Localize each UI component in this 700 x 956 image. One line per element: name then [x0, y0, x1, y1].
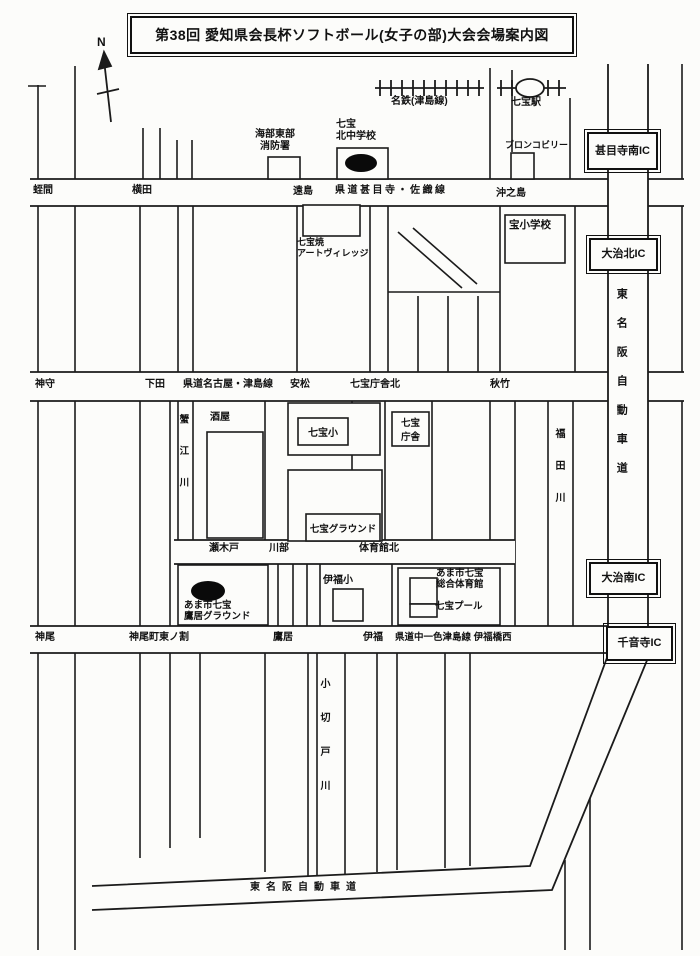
ic-oharu-minami: 大治南IC — [589, 562, 658, 595]
bronco-block — [511, 153, 534, 179]
junior-high-label: 七宝 北中学校 — [336, 119, 390, 143]
shippo-elementary-label: 七宝小 — [298, 418, 348, 445]
intersection-akitake: 秋竹 — [490, 379, 510, 391]
sogo-taiikukan-label: あま市七宝 総合体育館 — [436, 568, 484, 591]
north-arrow-icon — [97, 52, 119, 122]
kokirido-river-label: 小切戸川 — [317, 678, 329, 796]
intersection-kawabe: 川部 — [269, 543, 289, 555]
ifuku-elementary-label: 伊福小 — [323, 575, 353, 587]
ic-senonji-label: 千音寺IC — [618, 637, 662, 649]
intersection-takasue: 鷹居 — [273, 632, 293, 644]
art-village-label: 七宝焼 アートヴィレッジ — [297, 237, 368, 259]
ic-jimokuji-minami: 甚目寺南IC — [587, 132, 658, 170]
map-title: 第38回 愛知県会長杯ソフトボール(女子の部)大会会場案内図 — [130, 16, 574, 54]
pool-box — [410, 604, 437, 617]
road-nakaisshiki-label: 県道中一色津島線 伊福橋西 — [395, 632, 512, 643]
intersection-kamori: 神守 — [35, 379, 55, 391]
takara-elementary-label: 宝小学校 — [509, 219, 551, 232]
meitetsu-railway — [375, 79, 566, 97]
intersection-segido: 瀬木戸 — [209, 543, 239, 555]
shippo-pool-label: 七宝プール — [435, 601, 483, 612]
intersection-chosha-kita: 七宝庁舎北 — [350, 379, 400, 391]
sakaya-block — [207, 432, 263, 538]
bronco-billy-label: ブロンコビリー — [505, 140, 568, 151]
intersection-kamio: 神尾 — [35, 632, 55, 644]
gym-box — [410, 578, 437, 604]
shippo-chosha-label: 七宝 庁舎 — [392, 412, 429, 446]
map-title-text: 第38回 愛知県会長杯ソフトボール(女子の部)大会会場案内図 — [155, 25, 549, 45]
station-symbol — [516, 79, 544, 97]
ic-senonji: 千音寺IC — [606, 626, 673, 661]
station-label: 七宝駅 — [511, 97, 541, 109]
ic-oharu-kita: 大治北IC — [589, 238, 658, 271]
junior-high-venue-marker — [345, 154, 377, 172]
ifuku-elementary-box — [333, 589, 363, 621]
road-nagoya-tsushima-label: 県道名古屋・津島線 — [183, 379, 273, 391]
intersection-okinoshima: 沖之島 — [496, 188, 526, 200]
takasue-ground-label: あま市七宝 鷹居グラウンド — [184, 600, 251, 623]
shippo-ground-label: 七宝グラウンド — [306, 514, 380, 541]
map-canvas: 第38回 愛知県会長杯ソフトボール(女子の部)大会会場案内図 N 名鉄(津島線)… — [0, 0, 700, 956]
fukuta-river-label: 福田川 — [552, 428, 564, 510]
ic-oharu-minami-label: 大治南IC — [602, 572, 646, 584]
takasue-ground-venue-marker — [191, 581, 225, 601]
fire-station-block — [268, 157, 300, 179]
intersection-ifuku: 伊福 — [363, 632, 383, 644]
intersection-hiruma: 蛭間 — [33, 185, 53, 197]
sakaya-label: 酒屋 — [210, 412, 230, 424]
kanie-river-label: 蟹江川 — [177, 414, 188, 492]
ic-jimokuji-minami-label: 甚目寺南IC — [594, 145, 652, 157]
north-label: N — [97, 35, 106, 49]
intersection-yasumatsu: 安松 — [290, 379, 310, 391]
intersection-yokota: 横田 — [132, 185, 152, 197]
intersection-toshima: 遠島 — [293, 186, 313, 198]
tomeihan-vertical-label: 東名阪自動車道 — [614, 288, 627, 520]
fire-station-label: 海部東部 消防署 — [248, 129, 302, 153]
art-village-block — [303, 205, 360, 236]
intersection-kamio-higashinowari: 神尾町東ノ割 — [129, 632, 189, 644]
road-jimokuji-saori-label: 県道甚目寺・佐織線 — [335, 185, 448, 197]
ic-oharu-kita-label: 大治北IC — [602, 248, 646, 260]
tomeihan-bottom-label: 東名阪自動車道 — [250, 882, 362, 894]
railway-line-label: 名鉄(津島線) — [391, 96, 448, 108]
intersection-shimoda: 下田 — [145, 379, 165, 391]
intersection-taiikukan-kita: 体育館北 — [359, 543, 399, 555]
